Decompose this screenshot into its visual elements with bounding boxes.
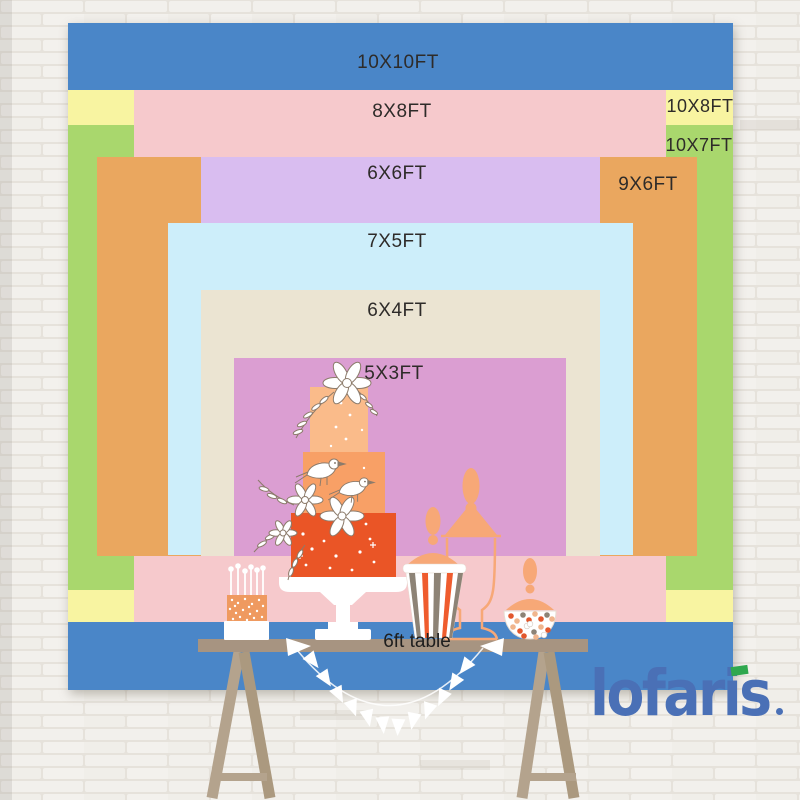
size-label-6x6ft: 6X6FT xyxy=(367,163,427,185)
table-trestle-left xyxy=(212,652,270,798)
logo-registered-dot xyxy=(776,708,783,715)
product-image: 10X10FT 8X8FT 10X8FT 10X7FT 9X6FT 6X6FT … xyxy=(0,0,800,800)
size-label-7x5ft: 7X5FT xyxy=(367,231,427,253)
size-label-6x4ft: 6X4FT xyxy=(367,300,427,322)
size-label-10x8ft: 10X8FT xyxy=(666,96,733,117)
wedding-cake xyxy=(254,360,407,640)
size-label-5x3ft: 5X3FT xyxy=(364,363,424,385)
size-label-8x8ft: 8X8FT xyxy=(372,101,432,123)
cake-pops xyxy=(224,563,269,640)
table-size-label: 6ft table xyxy=(383,631,451,653)
size-label-9x6ft: 9X6FT xyxy=(618,174,678,196)
table-trestle-right xyxy=(522,652,576,798)
size-label-10x7ft: 10X7FT xyxy=(665,135,732,156)
size-label-10x10ft: 10X10FT xyxy=(357,52,439,74)
candy-bowl-jar xyxy=(504,558,556,640)
